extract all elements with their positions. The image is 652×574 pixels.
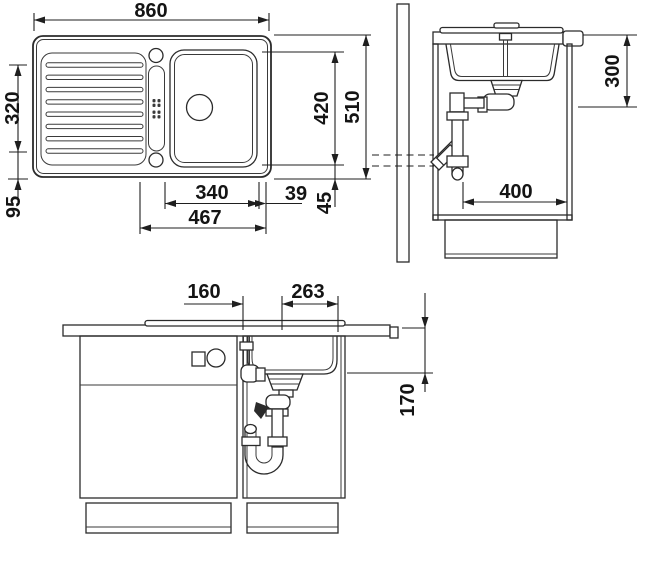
side-plinth <box>445 220 557 258</box>
side-waste-cap <box>500 34 512 41</box>
dim-860-label: 860 <box>134 0 167 22</box>
side-cabinet-front <box>567 44 572 220</box>
front-trap-nut <box>242 437 260 446</box>
dim-170: 170 <box>347 293 433 417</box>
side-cabinet-bottom <box>433 215 572 220</box>
dim-39-label: 39 <box>285 183 307 205</box>
dim-160-label: 160 <box>187 281 220 303</box>
dim-400: 400 <box>463 181 567 209</box>
technical-drawing: 860 320 95 420 510 45 340 39 467 <box>0 0 652 574</box>
front-tailpipe-nut <box>268 437 287 446</box>
front-trap-cap <box>245 425 257 434</box>
left-cabinet-outline <box>80 336 237 498</box>
front-plumbing <box>242 374 303 474</box>
dim-300-label: 300 <box>602 54 624 87</box>
front-left-cabinet <box>80 336 237 498</box>
dim-420-label: 420 <box>311 91 333 124</box>
tap-shank-nut <box>240 342 253 350</box>
left-cabinet-handle-square <box>192 352 205 366</box>
side-standpipe-nut-bottom <box>447 156 468 167</box>
left-cabinet-handle-knob <box>207 349 225 367</box>
dim-45-label: 45 <box>314 192 336 214</box>
dim-170-label: 170 <box>397 383 419 416</box>
sink-outline <box>33 36 271 177</box>
dim-300: 300 <box>578 35 637 107</box>
right-plinth <box>247 503 338 533</box>
dim-95-label: 95 <box>3 196 25 218</box>
side-junction-nut <box>450 93 464 112</box>
left-plinth <box>86 503 231 533</box>
tap-shank-elbow-nut <box>256 368 265 381</box>
dim-340-39-467: 340 39 467 <box>140 182 307 234</box>
top-view: 860 320 95 420 510 45 340 39 467 <box>2 0 371 234</box>
dim-263-label: 263 <box>291 281 324 303</box>
dim-320-95: 320 95 <box>2 65 28 218</box>
dim-320-label: 320 <box>2 91 24 124</box>
front-plinths <box>86 503 338 533</box>
front-sink-rim <box>145 321 345 327</box>
side-plumbing <box>372 81 522 181</box>
front-worktop-endcap <box>390 327 398 338</box>
side-drain-knob <box>494 23 519 28</box>
dim-340-label: 340 <box>195 182 228 204</box>
dim-467-label: 467 <box>188 207 221 229</box>
dim-860: 860 <box>34 0 269 31</box>
side-view: 300 400 <box>372 4 637 262</box>
side-standpipe-nut-top <box>447 112 468 120</box>
side-cabinet-back <box>433 44 438 220</box>
front-strainer <box>267 374 303 390</box>
front-elbow <box>266 395 290 409</box>
side-worktop-endcap <box>563 31 583 46</box>
dim-510-label: 510 <box>342 90 364 123</box>
dim-420-510-45: 420 510 45 <box>262 35 371 214</box>
side-standpipe-cap <box>452 168 463 180</box>
side-worktop <box>433 32 563 44</box>
drawing-canvas: 860 320 95 420 510 45 340 39 467 <box>0 0 652 574</box>
wall <box>397 4 409 262</box>
front-view: 160 263 170 <box>63 281 433 533</box>
dim-400-label: 400 <box>499 181 532 203</box>
